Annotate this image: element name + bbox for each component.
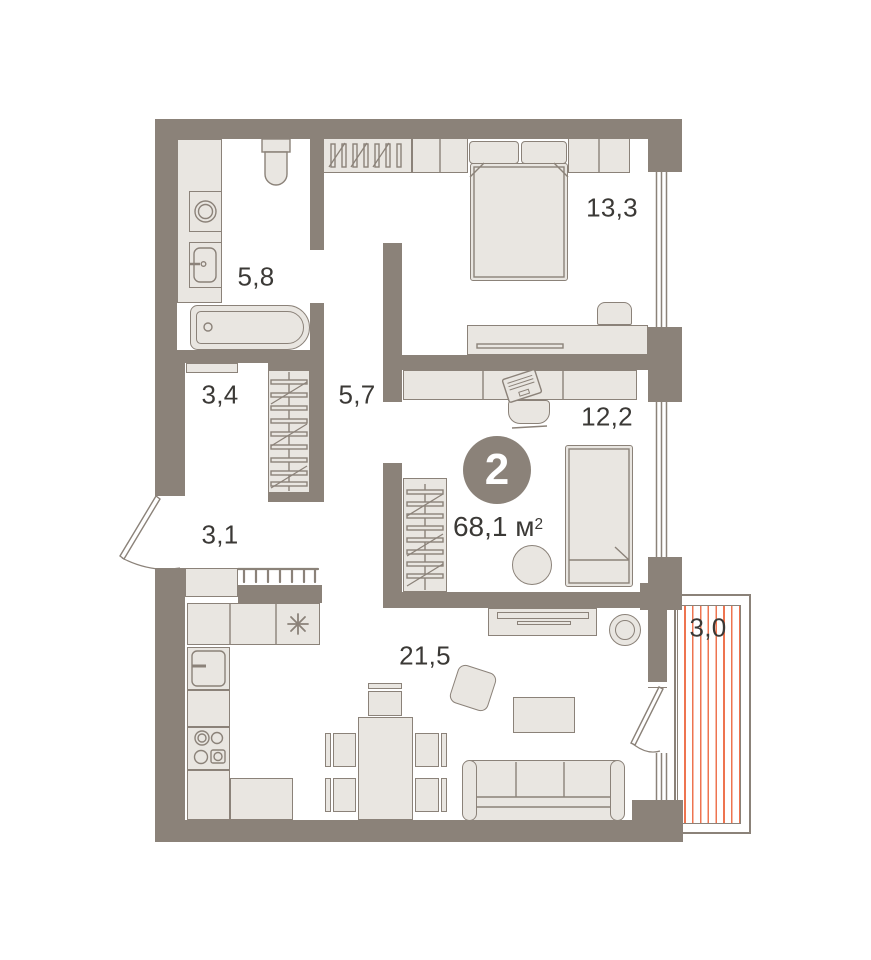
sofa <box>462 760 625 821</box>
double-bed <box>470 163 568 281</box>
dresser <box>467 325 648 355</box>
wall <box>155 350 185 496</box>
wall <box>310 303 324 502</box>
dining-chair-back <box>441 733 447 767</box>
wall <box>648 327 682 402</box>
entrance-door <box>120 496 180 569</box>
dining-chair-back <box>325 778 331 812</box>
pouf-square <box>448 663 498 713</box>
coat-hooks-icon <box>238 569 318 582</box>
fridge <box>187 647 230 690</box>
dining-chair <box>333 733 356 767</box>
dining-chair-back <box>441 778 447 812</box>
toilet-icon <box>262 139 290 185</box>
room-label-bedroom: 13,3 <box>586 193 638 224</box>
room-label-storage: 3,4 <box>201 380 238 411</box>
desk-chair <box>508 400 550 424</box>
wall <box>648 139 682 172</box>
stool <box>597 302 632 325</box>
rooms-count-badge: 2 <box>463 436 531 504</box>
bathroom-sink <box>189 242 222 288</box>
wall <box>155 119 177 350</box>
kitchen-counter <box>187 603 320 645</box>
bathtub-inner <box>196 311 304 344</box>
total-area-label: 68,1 м2 <box>438 511 558 543</box>
wall <box>155 350 310 363</box>
dining-chair <box>415 733 439 767</box>
wall <box>155 820 683 842</box>
dining-chair <box>333 778 356 812</box>
wall <box>632 800 683 822</box>
sofa-armrest <box>610 760 625 821</box>
coffee-table <box>513 697 575 733</box>
wall <box>648 557 682 583</box>
wall <box>155 568 185 842</box>
wardrobe-storage <box>268 370 310 493</box>
balcony-door <box>631 687 663 752</box>
single-bed <box>565 445 633 587</box>
room-label-kitchen-living: 21,5 <box>399 641 451 672</box>
door-frame <box>648 682 667 687</box>
wall <box>383 592 648 608</box>
dining-chair-back <box>368 683 402 689</box>
total-area-unit: м <box>515 511 534 542</box>
pouf <box>512 545 552 585</box>
washing-machine <box>189 191 222 232</box>
floor-plan: 5,8 3,4 5,7 3,1 21,5 13,3 12,2 3,0 2 68,… <box>0 0 871 960</box>
wall <box>383 243 402 402</box>
total-area-value: 68,1 <box>453 511 508 542</box>
kitchen-counter <box>187 770 230 820</box>
dining-chair-back <box>325 733 331 767</box>
wall <box>402 355 648 370</box>
room-label-bathroom: 5,8 <box>237 262 274 293</box>
room-label-bedroom-2: 12,2 <box>581 402 633 433</box>
total-area-superscript: 2 <box>534 516 543 533</box>
tv-stand <box>517 621 571 625</box>
dining-chair <box>415 778 439 812</box>
door-frame <box>648 752 667 757</box>
kitchen-counter <box>187 690 230 727</box>
desk <box>403 370 637 400</box>
cabinet <box>412 138 468 173</box>
room-label-entry-hall: 3,1 <box>201 520 238 551</box>
pillow <box>469 141 519 164</box>
window-glazing <box>657 172 667 800</box>
dining-chair <box>368 691 402 716</box>
wardrobe-bedroom <box>323 138 412 173</box>
wall <box>310 139 324 250</box>
wall <box>648 610 667 688</box>
wall <box>383 463 402 608</box>
tv <box>497 612 589 619</box>
wall <box>268 493 310 502</box>
cabinet <box>568 138 630 173</box>
kitchen-counter <box>230 778 293 820</box>
sofa-armrest <box>462 760 477 821</box>
room-label-balcony: 3,0 <box>689 613 726 644</box>
hall-cabinet <box>185 568 238 597</box>
shelf <box>186 363 238 373</box>
room-label-corridor: 5,7 <box>338 380 375 411</box>
pillow <box>521 141 567 164</box>
stove <box>187 727 230 770</box>
dining-table <box>358 717 413 820</box>
wall <box>238 585 322 603</box>
wall <box>155 119 682 139</box>
wall <box>268 363 310 370</box>
side-table-inner <box>615 620 635 640</box>
